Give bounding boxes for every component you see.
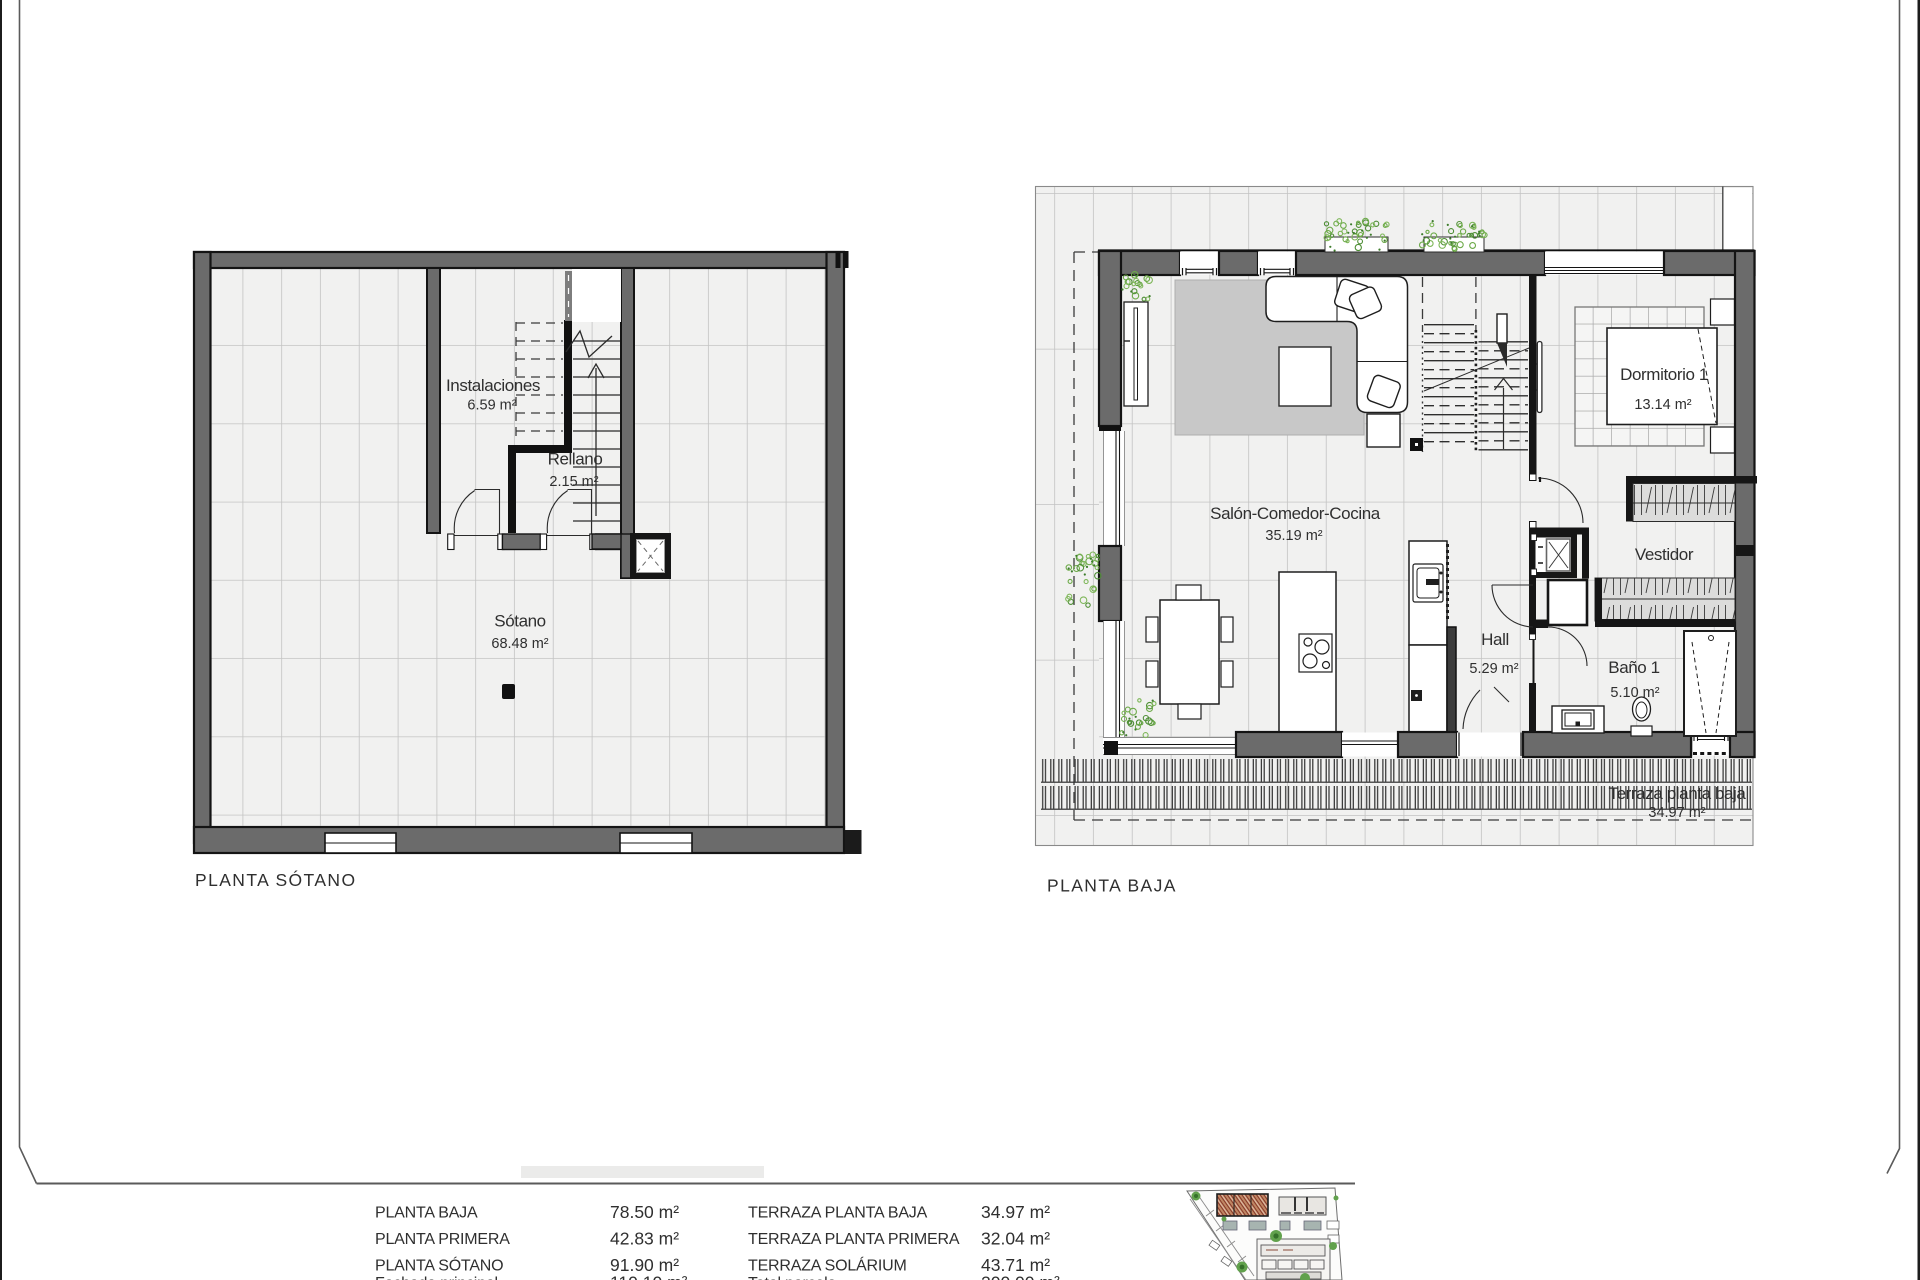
- svg-text:Salón-Comedor-Cocina: Salón-Comedor-Cocina: [1210, 504, 1381, 523]
- svg-text:2.15 m²: 2.15 m²: [549, 474, 598, 490]
- svg-text:34.97 m²: 34.97 m²: [981, 1202, 1050, 1222]
- svg-text:5.10 m²: 5.10 m²: [1610, 685, 1659, 701]
- svg-text:TERRAZA SOLÁRIUM: TERRAZA SOLÁRIUM: [748, 1256, 907, 1275]
- svg-text:Sótano: Sótano: [494, 612, 545, 631]
- svg-text:Dormitorio 1: Dormitorio 1: [1620, 365, 1708, 384]
- svg-text:PLANTA SÓTANO: PLANTA SÓTANO: [195, 869, 356, 890]
- svg-text:PLANTA BAJA: PLANTA BAJA: [375, 1205, 478, 1222]
- svg-text:PLANTA SÓTANO: PLANTA SÓTANO: [375, 1256, 503, 1275]
- svg-text:35.19 m²: 35.19 m²: [1265, 528, 1322, 544]
- svg-text:PLANTA BAJA: PLANTA BAJA: [1047, 876, 1177, 896]
- svg-text:68.48 m²: 68.48 m²: [491, 636, 548, 652]
- svg-text:TERRAZA PLANTA PRIMERA: TERRAZA PLANTA PRIMERA: [748, 1231, 960, 1248]
- svg-text:78.50 m²: 78.50 m²: [610, 1202, 679, 1222]
- svg-text:Vestidor: Vestidor: [1635, 545, 1694, 564]
- svg-text:5.29 m²: 5.29 m²: [1469, 661, 1518, 677]
- svg-text:32.04 m²: 32.04 m²: [981, 1229, 1050, 1249]
- svg-text:42.83 m²: 42.83 m²: [610, 1229, 679, 1249]
- svg-text:TERRAZA PLANTA BAJA: TERRAZA PLANTA BAJA: [748, 1205, 928, 1222]
- svg-text:Baño 1: Baño 1: [1608, 658, 1659, 677]
- svg-text:Total parcela: Total parcela: [748, 1275, 836, 1280]
- svg-text:Rellano: Rellano: [548, 450, 603, 469]
- svg-text:PLANTA PRIMERA: PLANTA PRIMERA: [375, 1231, 510, 1248]
- svg-text:13.14 m²: 13.14 m²: [1634, 397, 1691, 413]
- svg-text:200.00 m²: 200.00 m²: [981, 1273, 1060, 1280]
- svg-text:Fachada principal: Fachada principal: [375, 1275, 498, 1280]
- svg-text:Terraza planta baja: Terraza planta baja: [1609, 784, 1747, 803]
- svg-text:Instalaciones: Instalaciones: [446, 376, 540, 395]
- svg-text:Hall: Hall: [1481, 630, 1509, 649]
- svg-text:110.10 m²: 110.10 m²: [610, 1273, 688, 1280]
- svg-text:34.97 m²: 34.97 m²: [1648, 805, 1705, 821]
- svg-text:6.59 m²: 6.59 m²: [467, 398, 516, 414]
